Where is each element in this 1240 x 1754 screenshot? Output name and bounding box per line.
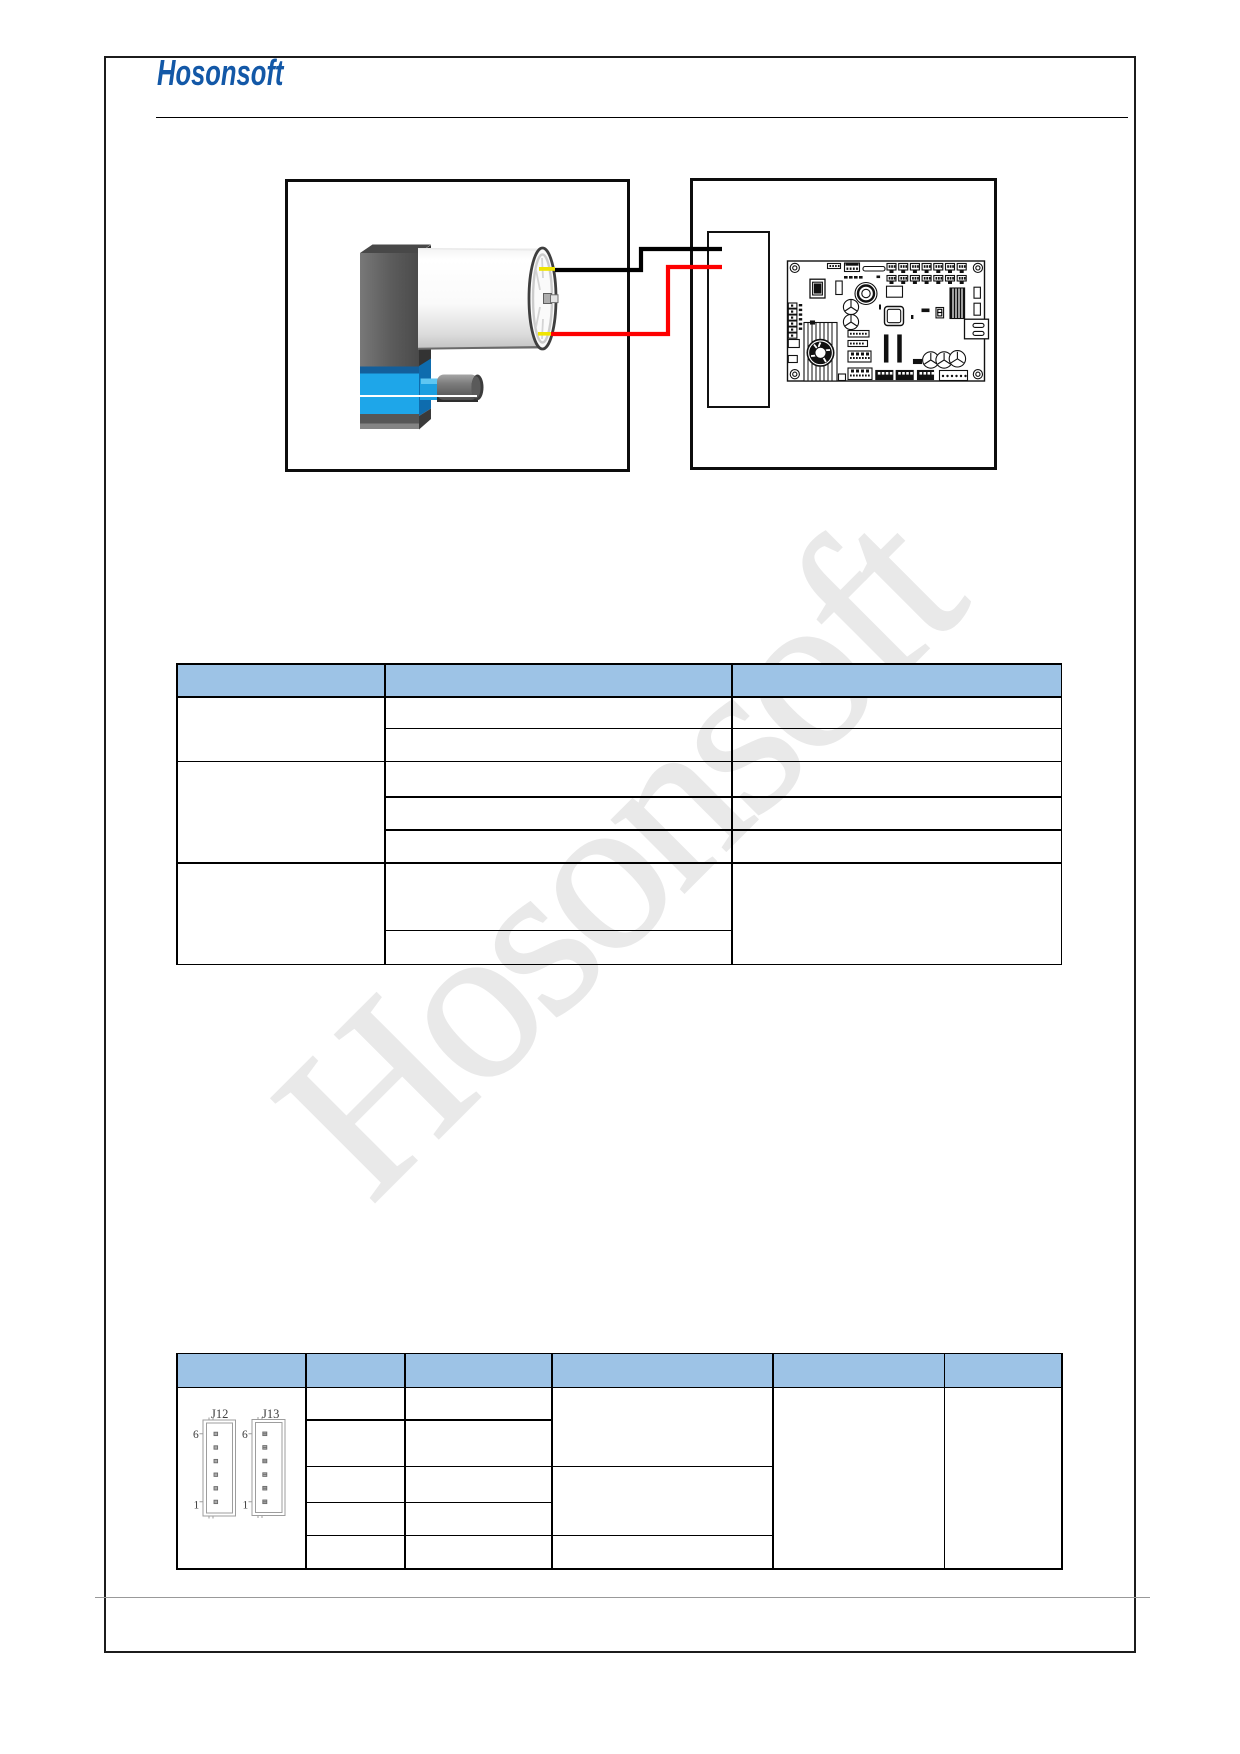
svg-text:J13: J13	[262, 1407, 279, 1421]
svg-text:J12: J12	[211, 1407, 228, 1421]
svg-text:1: 1	[243, 1500, 249, 1512]
svg-text:1: 1	[194, 1500, 200, 1512]
svg-text:6: 6	[193, 1429, 199, 1441]
svg-text:6: 6	[242, 1429, 248, 1441]
